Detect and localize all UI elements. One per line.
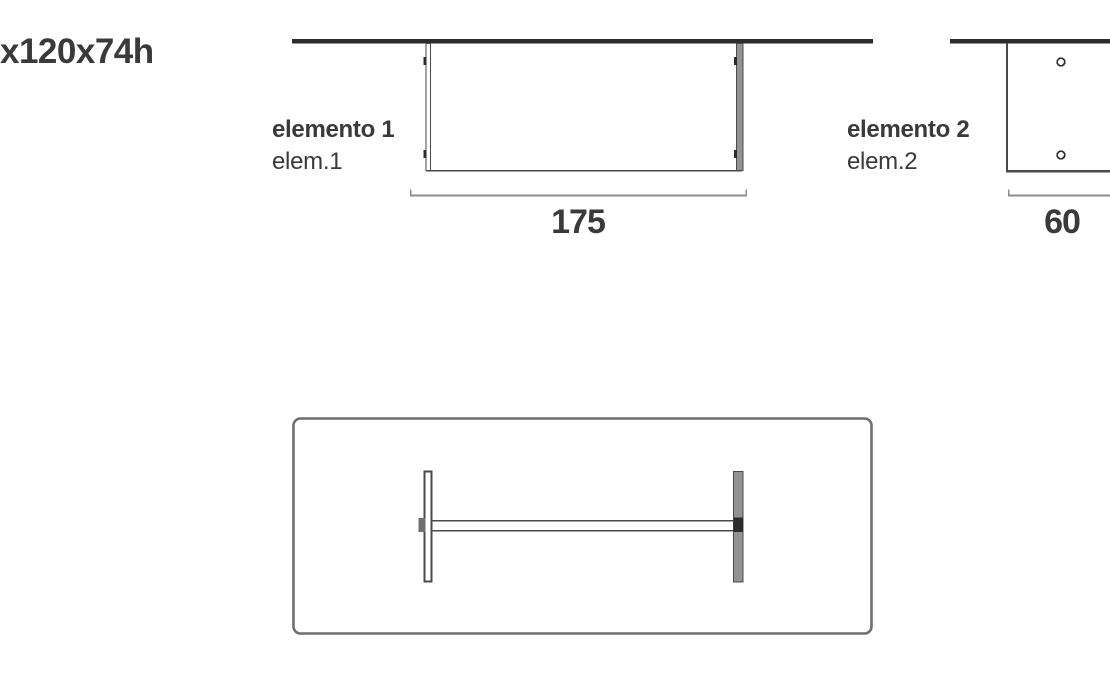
element2-dimension-line	[1008, 190, 1110, 196]
plan-view	[294, 419, 872, 634]
element1-dimension-line	[410, 190, 747, 196]
element1-connector-nub	[423, 57, 426, 65]
overall-dimensions-label: x120x74h	[0, 33, 154, 71]
element1-left-panel-edge	[426, 44, 431, 171]
element1-width-dimension-value: 175	[513, 203, 643, 242]
plan-right-beam-junction	[734, 518, 744, 533]
element2-side-elevation	[950, 41, 1110, 196]
element2-name-label: elemento 2	[847, 117, 969, 143]
element2-width-dimension-value: 60	[1010, 203, 1110, 242]
plan-central-beam	[432, 521, 734, 531]
technical-drawing-sheet: x120x74h elemento 1 elem.1 175 elemento …	[0, 0, 1110, 680]
element2-screw-hole	[1057, 58, 1065, 66]
element2-screw-hole	[1057, 151, 1065, 159]
element1-connector-nub	[734, 150, 737, 158]
element1-connector-nub	[423, 150, 426, 158]
drawing-linework	[0, 0, 1110, 680]
element1-right-panel	[737, 44, 744, 171]
element1-connector-nub	[734, 57, 737, 65]
element1-name-label: elemento 1	[272, 117, 394, 143]
element1-short-name-label: elem.1	[272, 149, 342, 175]
plan-left-leg-panel	[425, 472, 432, 582]
plan-left-beam-junction	[419, 518, 426, 532]
element2-short-name-label: elem.2	[847, 149, 917, 175]
